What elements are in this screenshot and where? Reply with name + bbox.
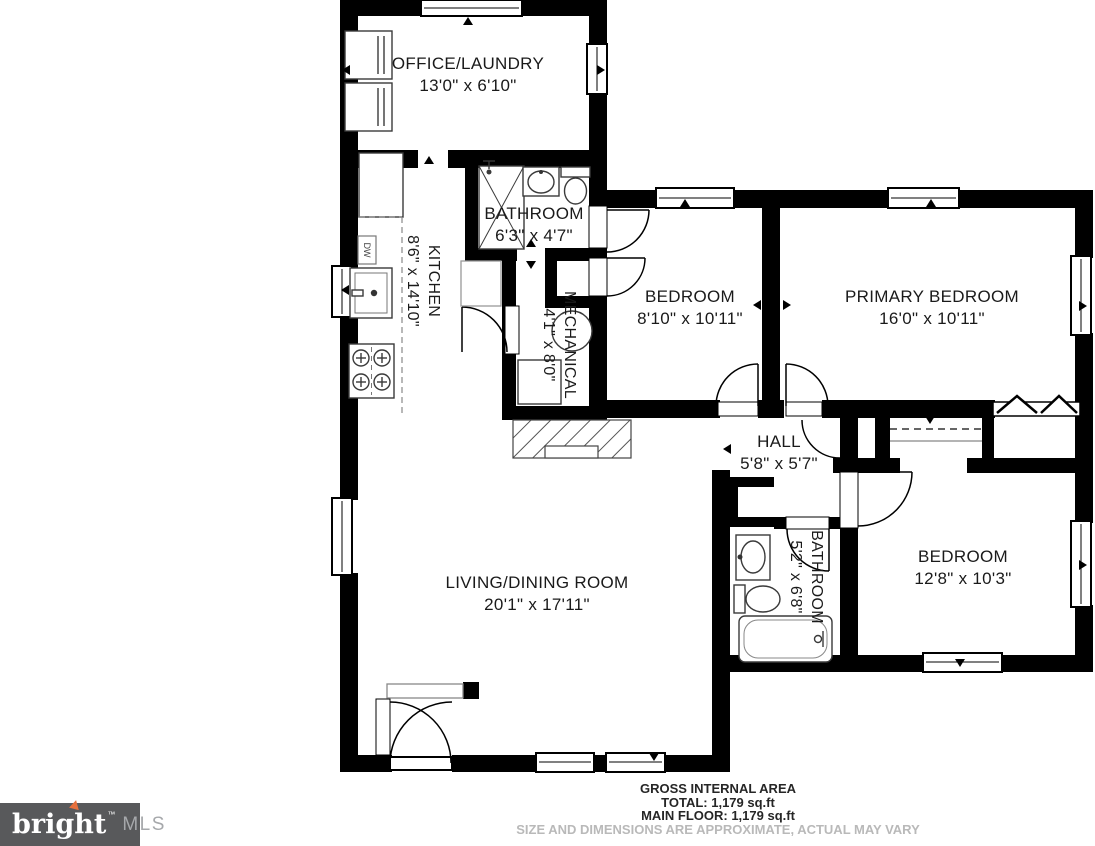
floor-plan: DW OFFICE/LAUNDRY 13'0" x <box>0 0 1095 846</box>
room-name: BEDROOM <box>637 286 743 308</box>
room-dims: 8'10" x 10'11" <box>637 308 743 330</box>
room-label-mechanical: MECHANICAL 4'1" x 8'0" <box>538 291 580 399</box>
room-label-kitchen: KITCHEN 8'6" x 14'10" <box>402 235 444 327</box>
area-main-floor: MAIN FLOOR: 1,179 sq.ft <box>516 809 920 823</box>
area-summary: GROSS INTERNAL AREA TOTAL: 1,179 sq.ft M… <box>516 782 920 836</box>
room-name: LIVING/DINING ROOM <box>446 572 629 594</box>
room-name: OFFICE/LAUNDRY <box>392 53 544 75</box>
room-name: MECHANICAL <box>559 291 580 399</box>
area-total: TOTAL: 1,179 sq.ft <box>516 796 920 810</box>
room-dims: 13'0" x 6'10" <box>392 75 544 97</box>
room-name: KITCHEN <box>423 235 444 327</box>
room-label-bedroom-middle: BEDROOM 8'10" x 10'11" <box>637 286 743 330</box>
room-dims: 5'8" x 5'7" <box>740 453 818 475</box>
room-label-living-dining: LIVING/DINING ROOM 20'1" x 17'11" <box>446 572 629 616</box>
bright-mls-logo: bright ™ MLS <box>0 803 140 846</box>
room-name: HALL <box>740 431 818 453</box>
room-label-hall: HALL 5'8" x 5'7" <box>740 431 818 475</box>
room-dims: 6'3" x 4'7" <box>484 225 583 247</box>
room-name: BEDROOM <box>914 546 1011 568</box>
room-dims: 12'8" x 10'3" <box>914 568 1011 590</box>
room-label-bathroom-lower: BATHROOM 5'2" x 6'8" <box>785 530 827 624</box>
room-name: BATHROOM <box>484 203 583 225</box>
room-dims: 4'1" x 8'0" <box>538 291 559 399</box>
room-dims: 5'2" x 6'8" <box>785 530 806 624</box>
room-labels: OFFICE/LAUNDRY 13'0" x 6'10" BATHROOM 6'… <box>0 0 1095 846</box>
room-label-bedroom-right: BEDROOM 12'8" x 10'3" <box>914 546 1011 590</box>
logo-suffix-text: MLS <box>122 814 166 836</box>
area-title: GROSS INTERNAL AREA <box>516 782 920 796</box>
room-name: BATHROOM <box>806 530 827 624</box>
room-dims: 16'0" x 10'11" <box>845 308 1019 330</box>
room-label-bathroom-upper: BATHROOM 6'3" x 4'7" <box>484 203 583 247</box>
room-label-primary-bedroom: PRIMARY BEDROOM 16'0" x 10'11" <box>845 286 1019 330</box>
room-label-office-laundry: OFFICE/LAUNDRY 13'0" x 6'10" <box>392 53 544 97</box>
logo-brand-text: bright <box>12 811 106 838</box>
size-disclaimer: SIZE AND DIMENSIONS ARE APPROXIMATE, ACT… <box>516 823 920 837</box>
room-dims: 20'1" x 17'11" <box>446 594 629 616</box>
room-dims: 8'6" x 14'10" <box>402 235 423 327</box>
logo-trademark: ™ <box>107 810 115 819</box>
room-name: PRIMARY BEDROOM <box>845 286 1019 308</box>
